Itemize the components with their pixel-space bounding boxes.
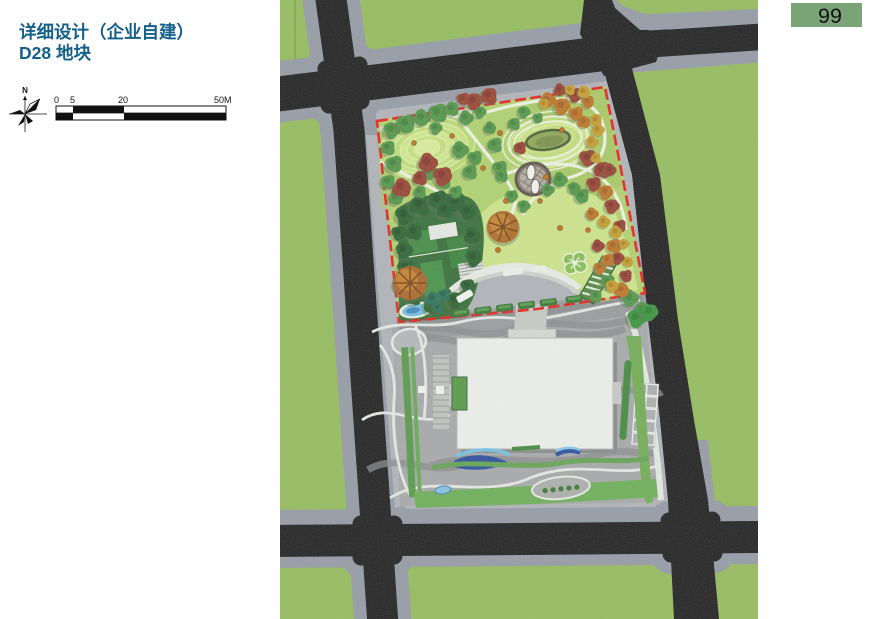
svg-text:详细设计（企业自建）: 详细设计（企业自建） xyxy=(19,22,194,42)
svg-text:5: 5 xyxy=(70,95,75,105)
svg-text:D28 地块: D28 地块 xyxy=(19,43,91,63)
svg-text:99: 99 xyxy=(818,4,842,28)
svg-text:N: N xyxy=(22,86,28,95)
svg-text:20: 20 xyxy=(118,95,128,105)
svg-text:50M: 50M xyxy=(214,95,232,105)
svg-text:0: 0 xyxy=(54,95,59,105)
